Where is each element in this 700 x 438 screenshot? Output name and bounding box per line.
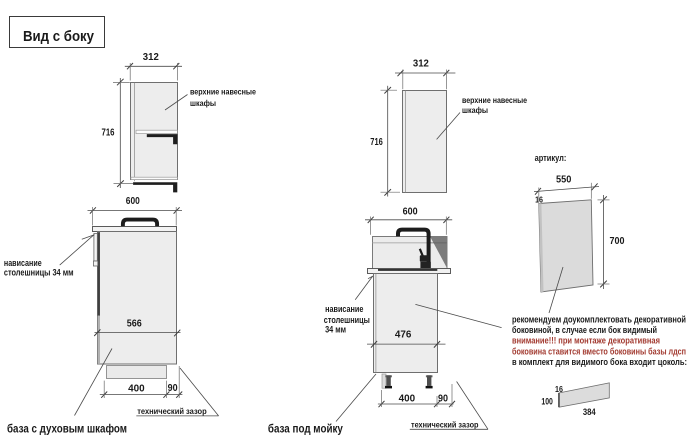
svg-text:384: 384 [583, 407, 596, 417]
svg-text:база с духовым шкафом: база с духовым шкафом [7, 422, 127, 436]
svg-text:476: 476 [395, 330, 412, 341]
svg-text:100: 100 [541, 396, 553, 406]
svg-text:34 мм: 34 мм [325, 324, 346, 334]
svg-text:312: 312 [413, 59, 430, 70]
svg-text:400: 400 [399, 394, 416, 405]
svg-text:700: 700 [610, 236, 625, 247]
svg-text:600: 600 [126, 196, 140, 207]
svg-text:шкафы: шкафы [190, 99, 216, 108]
svg-text:Вид с боку: Вид с боку [23, 28, 95, 45]
svg-text:технический зазор: технический зазор [137, 407, 207, 416]
svg-text:артикул:: артикул: [535, 153, 567, 163]
svg-text:столешницы 34 мм: столешницы 34 мм [4, 267, 74, 277]
svg-text:боковина ставится вместо боков: боковина ставится вместо боковины базы л… [512, 346, 686, 356]
svg-text:рекомендуем доукомплектовать д: рекомендуем доукомплектовать декоративно… [512, 315, 686, 325]
svg-text:16: 16 [535, 194, 543, 204]
svg-text:шкафы: шкафы [462, 106, 488, 115]
svg-text:400: 400 [128, 384, 145, 395]
svg-text:312: 312 [143, 52, 160, 63]
svg-text:в комплект для видимого бока в: в комплект для видимого бока входит цоко… [512, 357, 687, 367]
svg-text:716: 716 [370, 137, 383, 148]
svg-text:внимание!!! при монтаже декора: внимание!!! при монтаже декоративная [512, 336, 660, 346]
svg-text:верхние навесные: верхние навесные [190, 88, 256, 97]
svg-text:база под мойку: база под мойку [268, 422, 343, 436]
svg-text:90: 90 [168, 383, 178, 394]
svg-text:90: 90 [438, 393, 448, 404]
svg-text:технический зазор: технический зазор [411, 420, 479, 429]
svg-text:верхние навесные: верхние навесные [462, 96, 527, 105]
svg-text:550: 550 [556, 175, 572, 186]
svg-text:600: 600 [403, 207, 418, 218]
svg-text:566: 566 [127, 319, 142, 330]
svg-text:нависание: нависание [325, 304, 363, 314]
svg-text:боковиной, в случае если бок в: боковиной, в случае если бок видимый [512, 325, 657, 335]
svg-text:716: 716 [102, 127, 115, 138]
